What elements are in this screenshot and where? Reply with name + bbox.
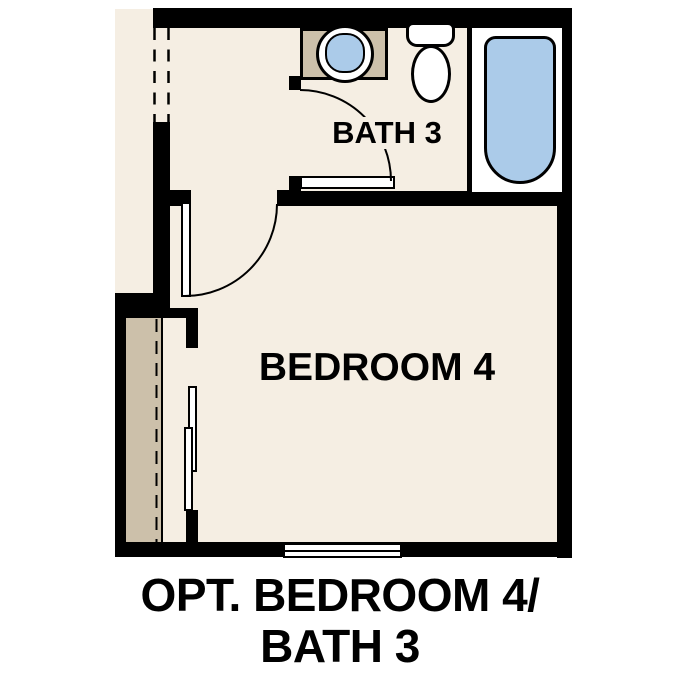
plan-caption-line2: BATH 3 <box>70 621 610 672</box>
floorplan-canvas: BATH 3 BEDROOM 4 OPT. BEDROOM 4/ BATH 3 <box>0 0 687 687</box>
wall-closet-jamb-top <box>186 308 198 348</box>
toilet-icon <box>411 45 451 103</box>
window-symbol <box>283 543 402 558</box>
sliding-door-front <box>184 427 193 511</box>
sink-basin <box>325 33 365 73</box>
wall-closet-jamb-bottom <box>186 510 198 542</box>
bathtub-icon <box>484 36 556 184</box>
window-mullion-line <box>285 550 400 552</box>
toilet-tank <box>406 22 455 47</box>
bedroom-door-leaf <box>181 202 191 297</box>
wall-left-upper <box>153 122 170 293</box>
plan-caption: OPT. BEDROOM 4/ BATH 3 <box>70 570 610 672</box>
bath-door-leaf <box>300 176 395 189</box>
closet-interior <box>126 318 163 542</box>
wall-top <box>153 8 572 28</box>
bedroom-room-label: BEDROOM 4 <box>217 348 537 388</box>
wall-bath-bedroom-divider <box>277 191 562 206</box>
bath-room-label: BATH 3 <box>307 117 467 149</box>
plan-caption-line1: OPT. BEDROOM 4/ <box>70 570 610 621</box>
